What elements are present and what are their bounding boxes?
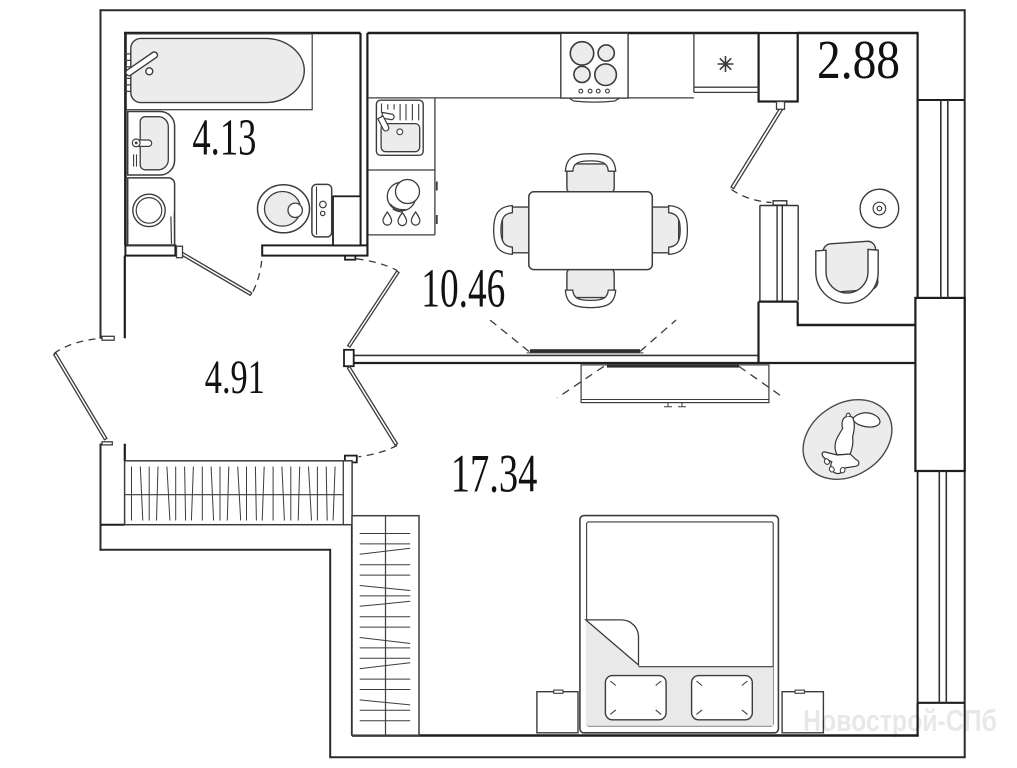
svg-text:17.34: 17.34 (451, 443, 538, 503)
svg-text:4.91: 4.91 (205, 351, 265, 404)
svg-text:2.88: 2.88 (817, 29, 900, 90)
svg-text:10.46: 10.46 (421, 258, 505, 319)
svg-text:Новострой-СПб: Новострой-СПб (803, 704, 997, 738)
svg-text:4.13: 4.13 (192, 109, 256, 166)
